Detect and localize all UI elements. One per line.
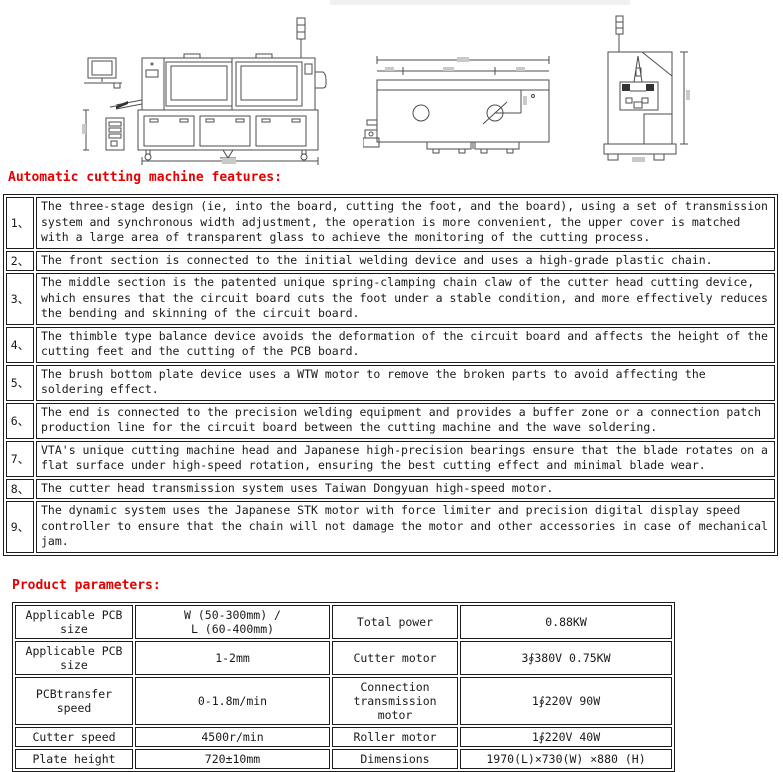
feature-row: 4、 The thimble type balance device avoid…: [6, 327, 775, 363]
parameter-label: Roller motor: [332, 727, 458, 747]
parameter-row: Cutter speed 4500r/min Roller motor 1∮22…: [15, 727, 672, 747]
feature-number: 7、: [6, 441, 34, 477]
feature-text: The dynamic system uses the Japanese STK…: [36, 501, 775, 553]
parameter-row: Plate height 720±10mm Dimensions 1970(L)…: [15, 749, 672, 769]
parameter-value: W (50-300mm) / L (60-400mm): [135, 605, 330, 639]
parameter-label: Applicable PCB size: [15, 641, 133, 675]
parameter-label: PCBtransfer speed: [15, 677, 133, 725]
feature-number: 3、: [6, 273, 34, 325]
feature-row: 6、 The end is connected to the precision…: [6, 403, 775, 439]
feature-number: 2、: [6, 251, 34, 272]
feature-row: 3、 The middle section is the patented un…: [6, 273, 775, 325]
parameter-label: Plate height: [15, 749, 133, 769]
parameter-value: 0-1.8m/min: [135, 677, 330, 725]
parameters-table: Applicable PCB size W (50-300mm) / L (60…: [12, 602, 675, 772]
technical-drawings-band: [0, 0, 783, 168]
parameter-row: Applicable PCB size W (50-300mm) / L (60…: [15, 605, 672, 639]
feature-row: 2、 The front section is connected to the…: [6, 251, 775, 272]
feature-row: 8、 The cutter head transmission system u…: [6, 479, 775, 500]
machine-side-view-drawing: [80, 10, 335, 165]
parameter-label: Dimensions: [332, 749, 458, 769]
features-heading: Automatic cutting machine features:: [8, 170, 783, 185]
parameter-label: Cutter speed: [15, 727, 133, 747]
feature-text: The three-stage design (ie, into the boa…: [36, 197, 775, 249]
machine-top-view-drawing: [363, 50, 568, 165]
feature-number: 5、: [6, 365, 34, 401]
features-table: 1、 The three-stage design (ie, into the …: [3, 194, 778, 556]
parameter-value: 4500r/min: [135, 727, 330, 747]
feature-row: 5、 The brush bottom plate device uses a …: [6, 365, 775, 401]
product-datasheet-page: { "colors": { "accent_red": "#e60000", "…: [0, 0, 783, 702]
feature-text: The middle section is the patented uniqu…: [36, 273, 775, 325]
feature-row: 1、 The three-stage design (ie, into the …: [6, 197, 775, 249]
feature-number: 1、: [6, 197, 34, 249]
parameter-value: 1∮220V 40W: [460, 727, 672, 747]
parameter-value: 3∮380V 0.75KW: [460, 641, 672, 675]
feature-number: 9、: [6, 501, 34, 553]
parameter-value: 1-2mm: [135, 641, 330, 675]
feature-row: 7、 VTA's unique cutting machine head and…: [6, 441, 775, 477]
parameters-heading: Product parameters:: [12, 578, 783, 593]
feature-text: The brush bottom plate device uses a WTW…: [36, 365, 775, 401]
parameter-value: 1∮220V 90W: [460, 677, 672, 725]
machine-end-view-drawing: [596, 10, 701, 165]
feature-row: 9、 The dynamic system uses the Japanese …: [6, 501, 775, 553]
feature-text: The end is connected to the precision we…: [36, 403, 775, 439]
parameter-label: Cutter motor: [332, 641, 458, 675]
parameter-row: PCBtransfer speed 0-1.8m/min Connection …: [15, 677, 672, 725]
parameter-label: Connection transmission motor: [332, 677, 458, 725]
scan-artifact-strip: [330, 0, 630, 5]
parameter-value: 1970(L)×730(W) ×880 (H): [460, 749, 672, 769]
parameter-label: Total power: [332, 605, 458, 639]
feature-text: The front section is connected to the in…: [36, 251, 775, 272]
feature-text: The thimble type balance device avoids t…: [36, 327, 775, 363]
parameter-label: Applicable PCB size: [15, 605, 133, 639]
feature-number: 6、: [6, 403, 34, 439]
feature-number: 4、: [6, 327, 34, 363]
parameter-value: 0.88KW: [460, 605, 672, 639]
parameter-row: Applicable PCB size 1-2mm Cutter motor 3…: [15, 641, 672, 675]
feature-text: VTA's unique cutting machine head and Ja…: [36, 441, 775, 477]
parameter-value: 720±10mm: [135, 749, 330, 769]
feature-number: 8、: [6, 479, 34, 500]
feature-text: The cutter head transmission system uses…: [36, 479, 775, 500]
